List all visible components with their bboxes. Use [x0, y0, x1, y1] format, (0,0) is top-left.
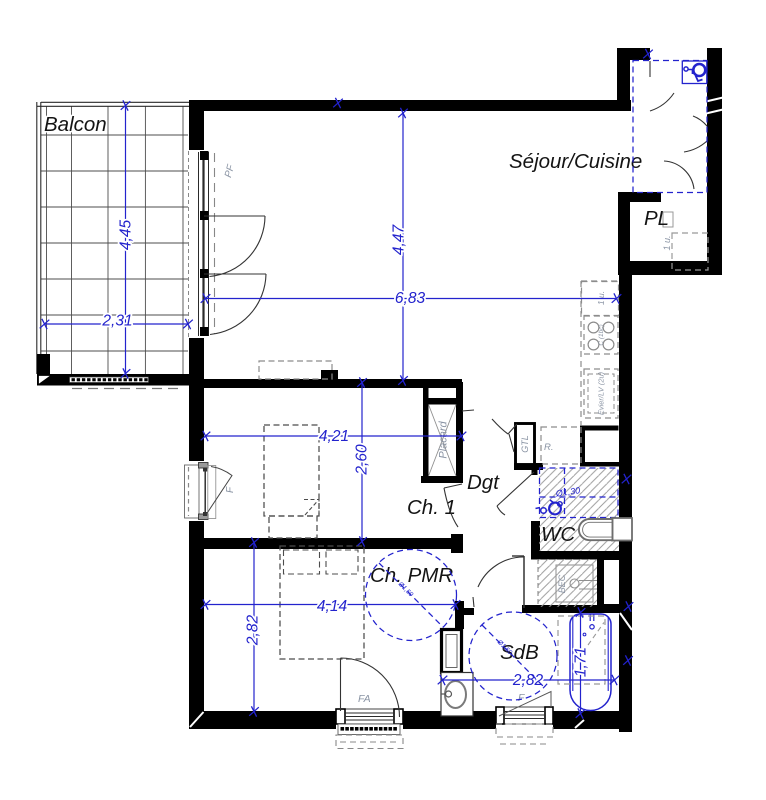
svg-text:Dgt: Dgt [467, 471, 500, 494]
svg-text:Placard: Placard [437, 420, 449, 458]
svg-text:4,21: 4,21 [319, 428, 349, 445]
svg-text:Balcon: Balcon [44, 113, 107, 136]
svg-text:1,71: 1,71 [572, 647, 589, 677]
svg-text:BEC: BEC [557, 574, 567, 593]
svg-text:GTL: GTL [520, 435, 530, 453]
svg-text:2,60: 2,60 [353, 444, 370, 476]
svg-text:Séjour/Cuisine: Séjour/Cuisine [509, 150, 642, 173]
svg-text:2,82: 2,82 [244, 615, 261, 647]
svg-text:2,82: 2,82 [512, 672, 544, 689]
svg-text:FA: FA [358, 693, 371, 705]
svg-text:R.: R. [544, 442, 554, 453]
svg-text:F: F [518, 692, 525, 704]
svg-text:1 u.: 1 u. [662, 235, 672, 250]
svg-text:Ch. PMR: Ch. PMR [370, 564, 453, 587]
svg-text:4,47: 4,47 [390, 224, 407, 256]
svg-text:PL: PL [644, 207, 669, 230]
svg-text:4,45: 4,45 [117, 220, 134, 251]
svg-text:WC: WC [541, 523, 575, 546]
svg-text:F: F [225, 486, 236, 493]
svg-text:6,83: 6,83 [395, 290, 426, 307]
svg-text:C (1bc): C (1bc) [598, 324, 605, 345]
svg-text:2,31: 2,31 [101, 312, 132, 329]
svg-text:Evier/LV (2u): Evier/LV (2u) [597, 371, 606, 415]
svg-text:4,14: 4,14 [317, 598, 348, 615]
